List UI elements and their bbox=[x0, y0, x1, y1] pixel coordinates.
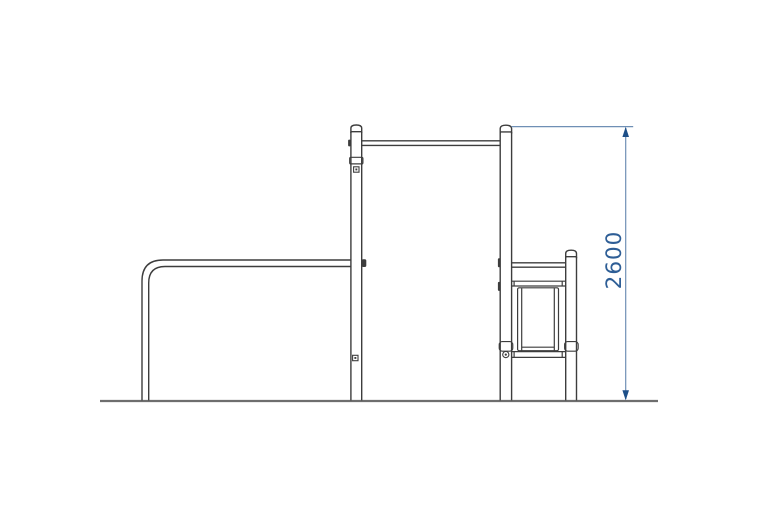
joint-bolts bbox=[348, 140, 507, 359]
dimension-arrow-down-icon bbox=[622, 390, 629, 400]
right-post bbox=[499, 125, 513, 400]
low-parallel-bar bbox=[142, 260, 351, 401]
drawing-canvas: 2600 bbox=[0, 0, 757, 529]
step-rear-post bbox=[565, 250, 579, 400]
step-unit bbox=[512, 250, 579, 400]
step-mid-bar bbox=[512, 281, 566, 286]
dimension: 2600 bbox=[512, 127, 634, 401]
pullup-frame bbox=[350, 125, 513, 401]
step-bottom-bar bbox=[512, 352, 566, 358]
pull-up-bar bbox=[362, 141, 501, 146]
step-top-bar bbox=[512, 263, 566, 267]
step-panel bbox=[518, 288, 559, 351]
dimension-label: 2600 bbox=[602, 231, 627, 290]
left-post bbox=[350, 125, 363, 401]
dimension-arrow-up-icon bbox=[622, 127, 629, 137]
equipment-side-view: 2600 bbox=[0, 0, 757, 529]
